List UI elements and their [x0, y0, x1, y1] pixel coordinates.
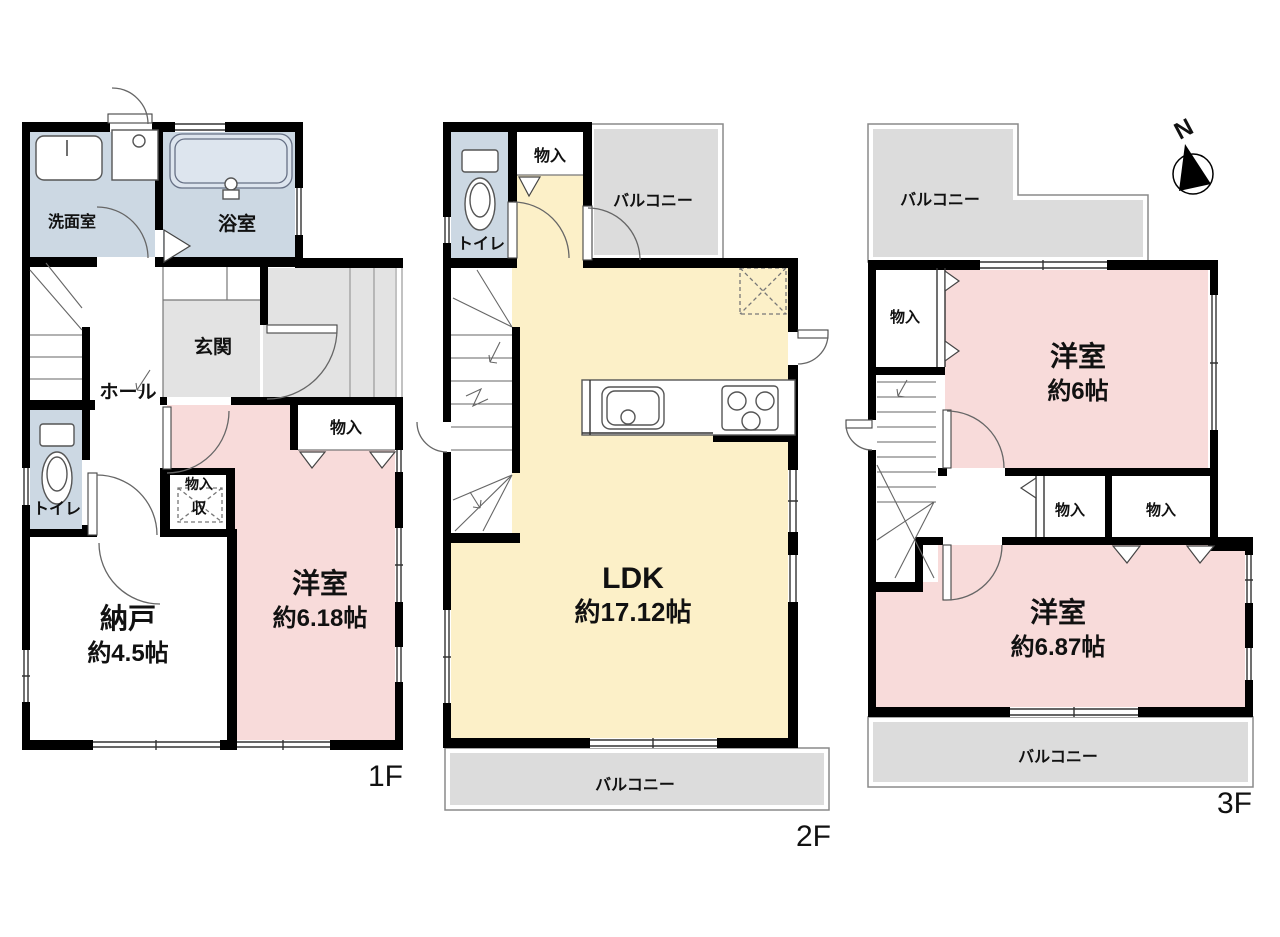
- hall-3f: [876, 476, 1035, 537]
- label-hall-1f: ホール: [99, 382, 156, 403]
- label-ldk-2f: LDK: [602, 562, 664, 595]
- room-storage-1f: [30, 537, 227, 740]
- door-leaf-exterior-3f: [846, 420, 872, 428]
- label-closet-c-3f: 物入: [1146, 501, 1176, 519]
- label-closet-b-3f: 物入: [1055, 501, 1085, 519]
- label-storage-size-1f: 約4.5帖: [87, 639, 168, 667]
- door-arc-exterior-left-2f: [417, 422, 447, 452]
- stairs-area-1f: [30, 267, 82, 400]
- label-western2-size-3f: 約6.87帖: [1011, 633, 1106, 661]
- label-toilet-1f: トイレ: [33, 501, 81, 518]
- floor-label-3f: 3F: [1217, 787, 1252, 820]
- label-balcony-top-3f: バルコニー: [900, 191, 980, 209]
- label-balcony-bottom-3f: バルコニー: [1018, 748, 1098, 766]
- rooms-3f: [868, 124, 1253, 787]
- door-leaf-western-1f: [163, 407, 171, 469]
- floor-3f-plan: バルコニー 物入 洋室 約6帖 物入 物入 洋室 約6.87帖 バルコニー 3F: [846, 124, 1253, 820]
- label-closet-inner-1f: 収: [191, 499, 207, 517]
- floor-label-1f: 1F: [368, 760, 403, 793]
- compass: N: [1170, 113, 1213, 194]
- label-ldk-size-2f: 約17.12帖: [574, 597, 691, 627]
- label-western-1f: 洋室: [292, 567, 348, 599]
- toilet-icon: [462, 150, 498, 230]
- door-leaf-exterior-right-2f: [798, 330, 828, 338]
- rooms-2f: [445, 124, 829, 810]
- label-entrance-1f: 玄関: [194, 335, 232, 358]
- label-storage-1f: 納戸: [100, 602, 156, 634]
- kitchen-counter-icon: [582, 380, 795, 435]
- floor-plan: 洗面室 浴室 玄関 ホール トイレ 物入 物入 収 納戸 約4.5帖 洋室 約6…: [0, 0, 1280, 937]
- label-balcony-top-2f: バルコニー: [613, 192, 693, 210]
- floor-plan-page: 洗面室 浴室 玄関 ホール トイレ 物入 物入 収 納戸 約4.5帖 洋室 約6…: [0, 0, 1280, 937]
- door-leaf-western1-3f: [943, 410, 951, 468]
- label-western2-3f: 洋室: [1030, 596, 1086, 628]
- balcony-top-2f: [594, 129, 718, 255]
- door-leaf-toilet-2f: [508, 202, 517, 258]
- floor-1f-plan: 洗面室 浴室 玄関 ホール トイレ 物入 物入 収 納戸 約4.5帖 洋室 約6…: [22, 88, 403, 793]
- label-closet-small-1f: 物入: [185, 476, 213, 492]
- label-closet-2f: 物入: [534, 146, 566, 165]
- label-toilet-2f: トイレ: [457, 236, 505, 253]
- label-closet-a-3f: 物入: [890, 308, 920, 326]
- door-leaf-western2-3f: [943, 545, 951, 600]
- label-washroom-1f: 洗面室: [48, 212, 96, 231]
- label-bathroom-1f: 浴室: [218, 212, 256, 235]
- door-leaf-toilet-1f: [88, 473, 97, 535]
- door-leaf-exterior-1f: [108, 114, 152, 123]
- label-western1-3f: 洋室: [1050, 340, 1106, 372]
- compass-north-label: N: [1170, 113, 1198, 145]
- label-western-size-1f: 約6.18帖: [273, 604, 368, 632]
- door-leaf-entrance-1f: [267, 325, 337, 333]
- sink-icon: [36, 136, 102, 180]
- floor-2f-plan: トイレ 物入 バルコニー LDK 約17.12帖 バルコニー 2F: [417, 122, 831, 853]
- entrance-step-1f: [163, 267, 260, 300]
- label-balcony-bottom-2f: バルコニー: [595, 776, 675, 794]
- label-western1-size-3f: 約6帖: [1047, 377, 1108, 405]
- floor-label-2f: 2F: [796, 820, 831, 853]
- label-closet-top-1f: 物入: [330, 418, 362, 437]
- door-leaf-balcony-2f: [583, 206, 592, 260]
- toilet-icon: [40, 424, 74, 504]
